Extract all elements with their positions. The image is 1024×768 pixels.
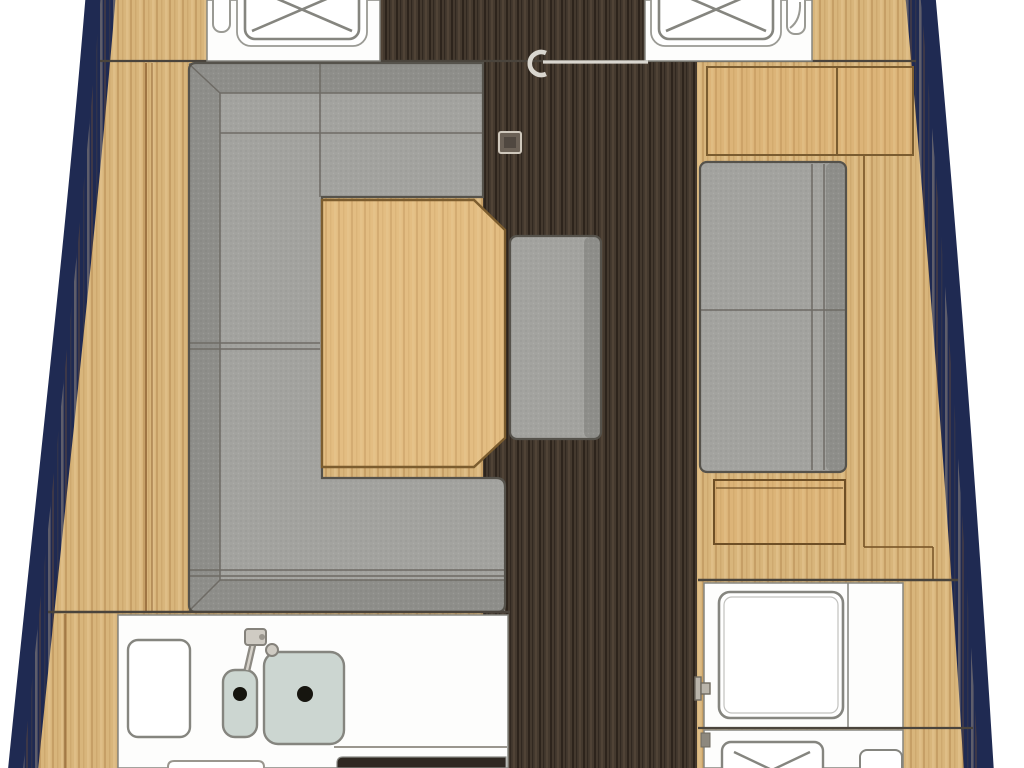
starboard-sideboard: [707, 67, 913, 155]
starboard-desk-panel: [714, 480, 845, 544]
lower-locker-edge: [168, 761, 264, 768]
stove-front: [337, 757, 506, 768]
aft-locker: [722, 742, 823, 768]
small-sink-drain: [233, 687, 247, 701]
port-deck-hatch: [207, 0, 380, 61]
small-sink: [223, 670, 257, 737]
chart-table: [719, 592, 843, 718]
hatch-slider-track: [213, 0, 230, 32]
aft-small-locker: [860, 750, 902, 768]
desk-grain: [714, 480, 845, 544]
walkway-forward: [378, 0, 645, 61]
saloon-table: [322, 200, 505, 467]
latch-mark: [701, 733, 710, 747]
hatch-frame: [245, 0, 359, 39]
table-grain: [322, 200, 505, 467]
starboard-deck-hatch: [645, 0, 812, 61]
starboard-bench: [700, 162, 846, 472]
floor-plan-canvas: [0, 0, 1024, 768]
hatch-slider-track: [787, 0, 805, 34]
ottoman-stool: [510, 236, 601, 439]
chopping-board: [128, 640, 190, 737]
floor-plan-drawing: [0, 0, 1024, 768]
galley: [118, 615, 508, 768]
hatch-frame: [659, 0, 773, 39]
stool-fabric: [510, 236, 601, 439]
mast-deck-fitting: [499, 132, 521, 153]
sideboard-grain: [707, 67, 913, 155]
large-sink-drain: [297, 686, 313, 702]
